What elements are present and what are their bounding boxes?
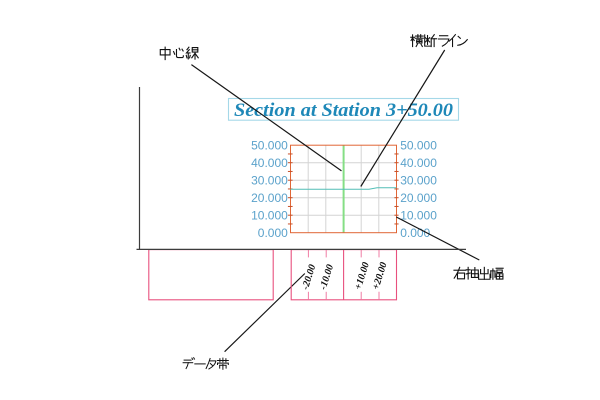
svg-text:30.000: 30.000 — [251, 174, 288, 188]
svg-text:10.000: 10.000 — [400, 209, 437, 223]
svg-text:40.000: 40.000 — [400, 156, 437, 170]
svg-text:50.000: 50.000 — [400, 139, 437, 153]
svg-text:0.000: 0.000 — [258, 226, 288, 240]
svg-text:20.000: 20.000 — [400, 191, 437, 205]
svg-text:10.000: 10.000 — [251, 209, 288, 223]
svg-text:0.000: 0.000 — [400, 226, 430, 240]
svg-text:50.000: 50.000 — [251, 139, 288, 153]
svg-text:40.000: 40.000 — [251, 156, 288, 170]
svg-text:20.000: 20.000 — [251, 191, 288, 205]
svg-text:30.000: 30.000 — [400, 174, 437, 188]
